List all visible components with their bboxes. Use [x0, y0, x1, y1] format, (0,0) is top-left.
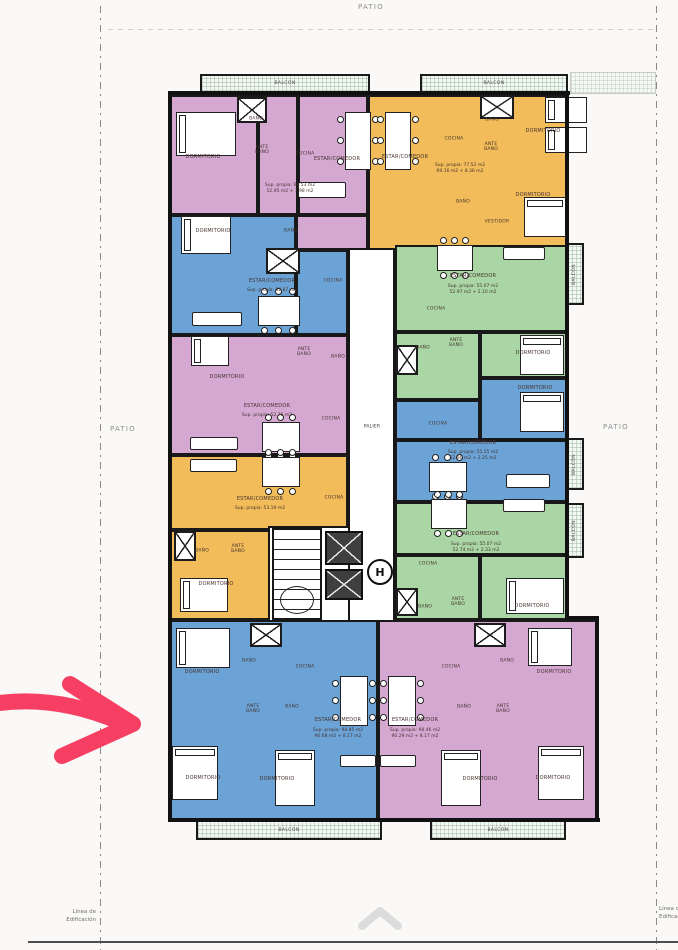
elevator-shaft-icon — [325, 569, 363, 600]
dining-table-icon — [262, 422, 300, 452]
room-label: ESTAR/COMEDOR — [453, 532, 499, 538]
room-label: BAÑO — [195, 548, 209, 553]
area-line: Sup. propia: 52.87 m2 — [247, 288, 297, 294]
room-label: ESTAR/COMEDOR — [314, 157, 360, 163]
room-label: ESTAR/COMEDOR — [244, 404, 290, 410]
area-line: 52.95 m2 + 7.98 m2 — [265, 189, 315, 195]
room-label: COCINA — [296, 151, 315, 156]
area-line: 52.90 m2 + 2.25 m2 — [448, 456, 498, 462]
chair-icon — [462, 237, 469, 244]
chair-icon — [265, 449, 272, 456]
area-line: 69.16 m2 + 8.36 m2 — [435, 169, 485, 175]
chair-icon — [261, 327, 268, 334]
bed-icon — [176, 112, 236, 156]
room-label: DORMITORIO — [185, 670, 220, 676]
outer-wall — [168, 818, 600, 822]
sofa-icon — [503, 499, 545, 512]
sofa-icon — [506, 474, 550, 488]
area-annotation: Sup. propia: 60.53 m252.95 m2 + 7.98 m2 — [265, 183, 315, 195]
duct-shaft-icon — [266, 248, 300, 274]
chair-icon — [432, 454, 439, 461]
floor-plan: BALCÓNBALCÓNBALCÓNBALCÓNBALCÓNBALCÓNBALC… — [0, 0, 678, 950]
duct-shaft-icon — [396, 345, 418, 375]
balcony: BALCÓN — [430, 820, 566, 840]
pillow — [548, 100, 555, 120]
chair-icon — [289, 327, 296, 334]
chair-icon — [275, 327, 282, 334]
balcony-label: BALCÓN — [573, 263, 578, 284]
chair-icon — [412, 137, 419, 144]
dining-table-icon — [431, 499, 467, 529]
room-label: COCINA — [445, 136, 464, 141]
room-label: COCINA — [427, 306, 446, 311]
room-label: ANTE BAÑO — [480, 142, 502, 152]
chair-icon — [445, 491, 452, 498]
room-label: ESTAR/COMEDOR — [450, 274, 496, 280]
bed-icon — [176, 628, 230, 668]
chair-icon — [434, 491, 441, 498]
room-label: PALIER — [364, 424, 381, 429]
area-line: 52.74 m2 + 2.33 m2 — [451, 548, 501, 554]
room-label: COCINA — [324, 278, 343, 283]
room-label: ESTAR/COMEDOR — [315, 718, 361, 724]
dining-table-icon — [262, 457, 300, 487]
pillow — [523, 395, 561, 402]
room-label: BAÑO — [456, 199, 470, 204]
chair-icon — [369, 680, 376, 687]
room-label: ESTAR/COMEDOR — [249, 279, 295, 285]
sofa-icon — [503, 247, 545, 260]
area-annotation: Sup. propia: 52.76 m2 — [242, 413, 292, 419]
bed-icon — [528, 628, 572, 666]
room — [296, 250, 348, 335]
room-label: DORMITORIO — [210, 375, 245, 381]
chair-icon — [369, 697, 376, 704]
room-label: ANTE BAÑO — [293, 347, 315, 357]
room-label: COCINA — [419, 561, 438, 566]
chair-icon — [289, 488, 296, 495]
area-annotation: Sup. propia: 98.85 m290.68 m2 + 8.17 m2 — [313, 728, 363, 740]
area-annotation: Sup. propia: 77.52 m269.16 m2 + 8.36 m2 — [435, 163, 485, 175]
bed-icon — [538, 746, 584, 800]
area-annotation: Sup. propia: 98.46 m290.29 m2 + 8.17 m2 — [390, 728, 440, 740]
room-label: COCINA — [322, 416, 341, 421]
area-line: Sup. propia: 52.76 m2 — [242, 413, 292, 419]
room-label: ANTE BAÑO — [445, 338, 467, 348]
room-label: BAÑO — [242, 658, 256, 663]
chair-icon — [445, 530, 452, 537]
room-label: VESTIDOR — [485, 219, 510, 224]
room-label: DORMITORIO — [516, 193, 551, 199]
room-label: DORMITORIO — [260, 777, 295, 783]
chair-icon — [434, 530, 441, 537]
chair-icon — [456, 491, 463, 498]
room-label: BAÑO — [331, 354, 345, 359]
area-line: 90.29 m2 + 8.17 m2 — [390, 734, 440, 740]
area-line: 90.68 m2 + 8.17 m2 — [313, 734, 363, 740]
room-label: DORMITORIO — [537, 670, 572, 676]
room-label: COCINA — [429, 421, 448, 426]
area-line: 52.97 m2 + 2.10 m2 — [448, 290, 498, 296]
pillow — [183, 581, 190, 609]
bed-icon — [191, 336, 229, 366]
chair-icon — [277, 449, 284, 456]
room-label: ANTE BAÑO — [447, 597, 469, 607]
room-label: DORMITORIO — [199, 582, 234, 588]
duct-shaft-icon — [480, 95, 514, 119]
balcony-label: BALCÓN — [487, 828, 508, 833]
balcony-label: BALCÓN — [483, 81, 504, 86]
balcony-label: BALCÓN — [274, 81, 295, 86]
balcony: BALCÓN — [196, 820, 382, 840]
chair-icon — [380, 714, 387, 721]
room-label: BAÑO — [457, 704, 471, 709]
pillow — [531, 631, 538, 663]
sofa-icon — [190, 437, 238, 450]
room-label: ESTAR/COMEDOR — [392, 718, 438, 724]
room-label: COCINA — [442, 664, 461, 669]
chair-icon — [277, 488, 284, 495]
floor-plan-page: PATIO PATIO PATIO Línea de Edificación L… — [0, 0, 678, 950]
duct-shaft-icon — [174, 531, 196, 561]
area-annotation: Sup. propia: 55.07 m252.74 m2 + 2.33 m2 — [451, 542, 501, 554]
sofa-icon — [380, 755, 416, 767]
chair-icon — [332, 697, 339, 704]
room-label: BAÑO — [249, 116, 263, 121]
sofa-icon — [190, 459, 237, 472]
room-label: ESTAR/COMEDOR — [450, 441, 496, 447]
duct-shaft-icon — [396, 588, 418, 616]
bed-icon — [520, 392, 564, 432]
room-label: BAÑO — [500, 658, 514, 663]
room — [296, 215, 368, 250]
chair-icon — [332, 680, 339, 687]
chair-icon — [412, 116, 419, 123]
room-label: DORMITORIO — [463, 777, 498, 783]
room-label: DORMITORIO — [186, 155, 221, 161]
room-label: COCINA — [296, 664, 315, 669]
pillow — [527, 200, 563, 207]
chair-icon — [451, 237, 458, 244]
stairs-curve — [280, 586, 314, 614]
room-label: ESTAR/COMEDOR — [382, 155, 428, 161]
dining-table-icon — [437, 245, 473, 271]
bed-icon — [172, 746, 218, 800]
sofa-icon — [192, 312, 242, 326]
area-annotation: Sup. propia: 52.87 m2 — [247, 288, 297, 294]
pillow — [175, 749, 215, 756]
room-label: DORMITORIO — [526, 129, 561, 135]
pillow — [278, 753, 312, 760]
dining-table-icon — [429, 462, 467, 492]
annotation-arrow — [0, 672, 150, 767]
chair-icon — [289, 449, 296, 456]
room-label: BAÑO — [285, 704, 299, 709]
room-label: ANTE BAÑO — [251, 145, 273, 155]
balcony — [570, 72, 656, 94]
pillow — [541, 749, 581, 756]
room-label: ANTE BAÑO — [492, 704, 514, 714]
chair-icon — [380, 697, 387, 704]
chair-icon — [337, 116, 344, 123]
duct-shaft-icon — [474, 623, 506, 647]
area-annotation: Sup. propia: 53.19 m2 — [235, 506, 285, 512]
pillow — [523, 338, 561, 345]
balcony-label: BALCÓN — [573, 520, 578, 541]
chair-icon — [417, 697, 424, 704]
dining-table-icon — [385, 112, 411, 170]
room-label: BAÑO — [284, 228, 298, 233]
pillow — [179, 115, 186, 153]
duct-shaft-icon — [250, 623, 282, 647]
room-label: DORMITORIO — [196, 229, 231, 235]
pillow — [179, 631, 186, 665]
room-label: DORMITORIO — [536, 776, 571, 782]
room-label: BAÑO — [418, 604, 432, 609]
room-label: ESTAR/COMEDOR — [237, 497, 283, 503]
room-label: DORMITORIO — [518, 386, 553, 392]
chevron-up-icon[interactable] — [352, 902, 408, 932]
elevator-shaft-icon — [325, 531, 363, 565]
chair-icon — [440, 272, 447, 279]
chair-icon — [369, 714, 376, 721]
bed-icon — [181, 216, 231, 254]
pillow — [444, 753, 478, 760]
room — [395, 400, 480, 440]
area-annotation: Sup. propia: 55.07 m252.97 m2 + 2.10 m2 — [448, 284, 498, 296]
chair-icon — [440, 237, 447, 244]
area-annotation: Sup. propia: 55.15 m252.90 m2 + 2.25 m2 — [448, 450, 498, 462]
room-label: ANTE BAÑO — [227, 544, 249, 554]
elevator-circle-icon: H — [367, 559, 393, 585]
chair-icon — [377, 116, 384, 123]
chair-icon — [265, 488, 272, 495]
pillow — [194, 339, 201, 363]
room-label: DORMITORIO — [515, 604, 550, 610]
room-label: COCINA — [325, 495, 344, 500]
outer-wall — [565, 616, 599, 620]
pillow — [184, 219, 191, 251]
room-label: DORMITORIO — [516, 351, 551, 357]
bottom-divider — [28, 941, 678, 943]
bed-icon — [524, 197, 566, 237]
outer-wall — [168, 91, 570, 95]
room-label: BAÑO — [485, 117, 499, 122]
area-line: Sup. propia: 53.19 m2 — [235, 506, 285, 512]
balcony-label: BALCÓN — [278, 828, 299, 833]
room-label: BAÑO — [416, 345, 430, 350]
chair-icon — [377, 137, 384, 144]
room-label: ANTE BAÑO — [242, 704, 264, 714]
chair-icon — [417, 680, 424, 687]
outer-wall — [168, 91, 172, 822]
room-label: DORMITORIO — [186, 776, 221, 782]
chair-icon — [337, 137, 344, 144]
chair-icon — [380, 680, 387, 687]
outer-wall — [595, 616, 599, 822]
outer-wall — [565, 91, 569, 620]
balcony-label: BALCÓN — [573, 453, 578, 474]
sofa-icon — [340, 755, 376, 767]
dining-table-icon — [258, 296, 300, 326]
